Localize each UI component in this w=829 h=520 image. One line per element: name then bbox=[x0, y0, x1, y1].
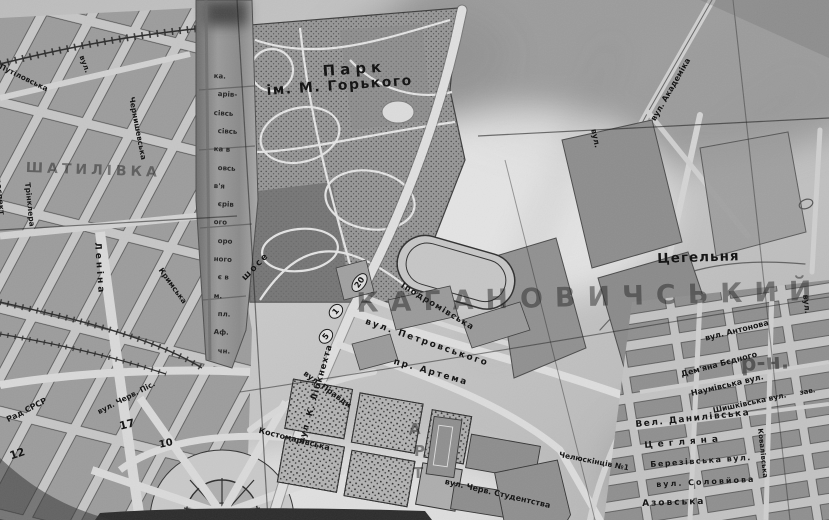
map-artwork bbox=[0, 0, 829, 520]
film-grain-overlay bbox=[0, 0, 829, 520]
map-photo: Паркім. М. ГорькогоПутіловськавул.Черниш… bbox=[0, 0, 829, 520]
